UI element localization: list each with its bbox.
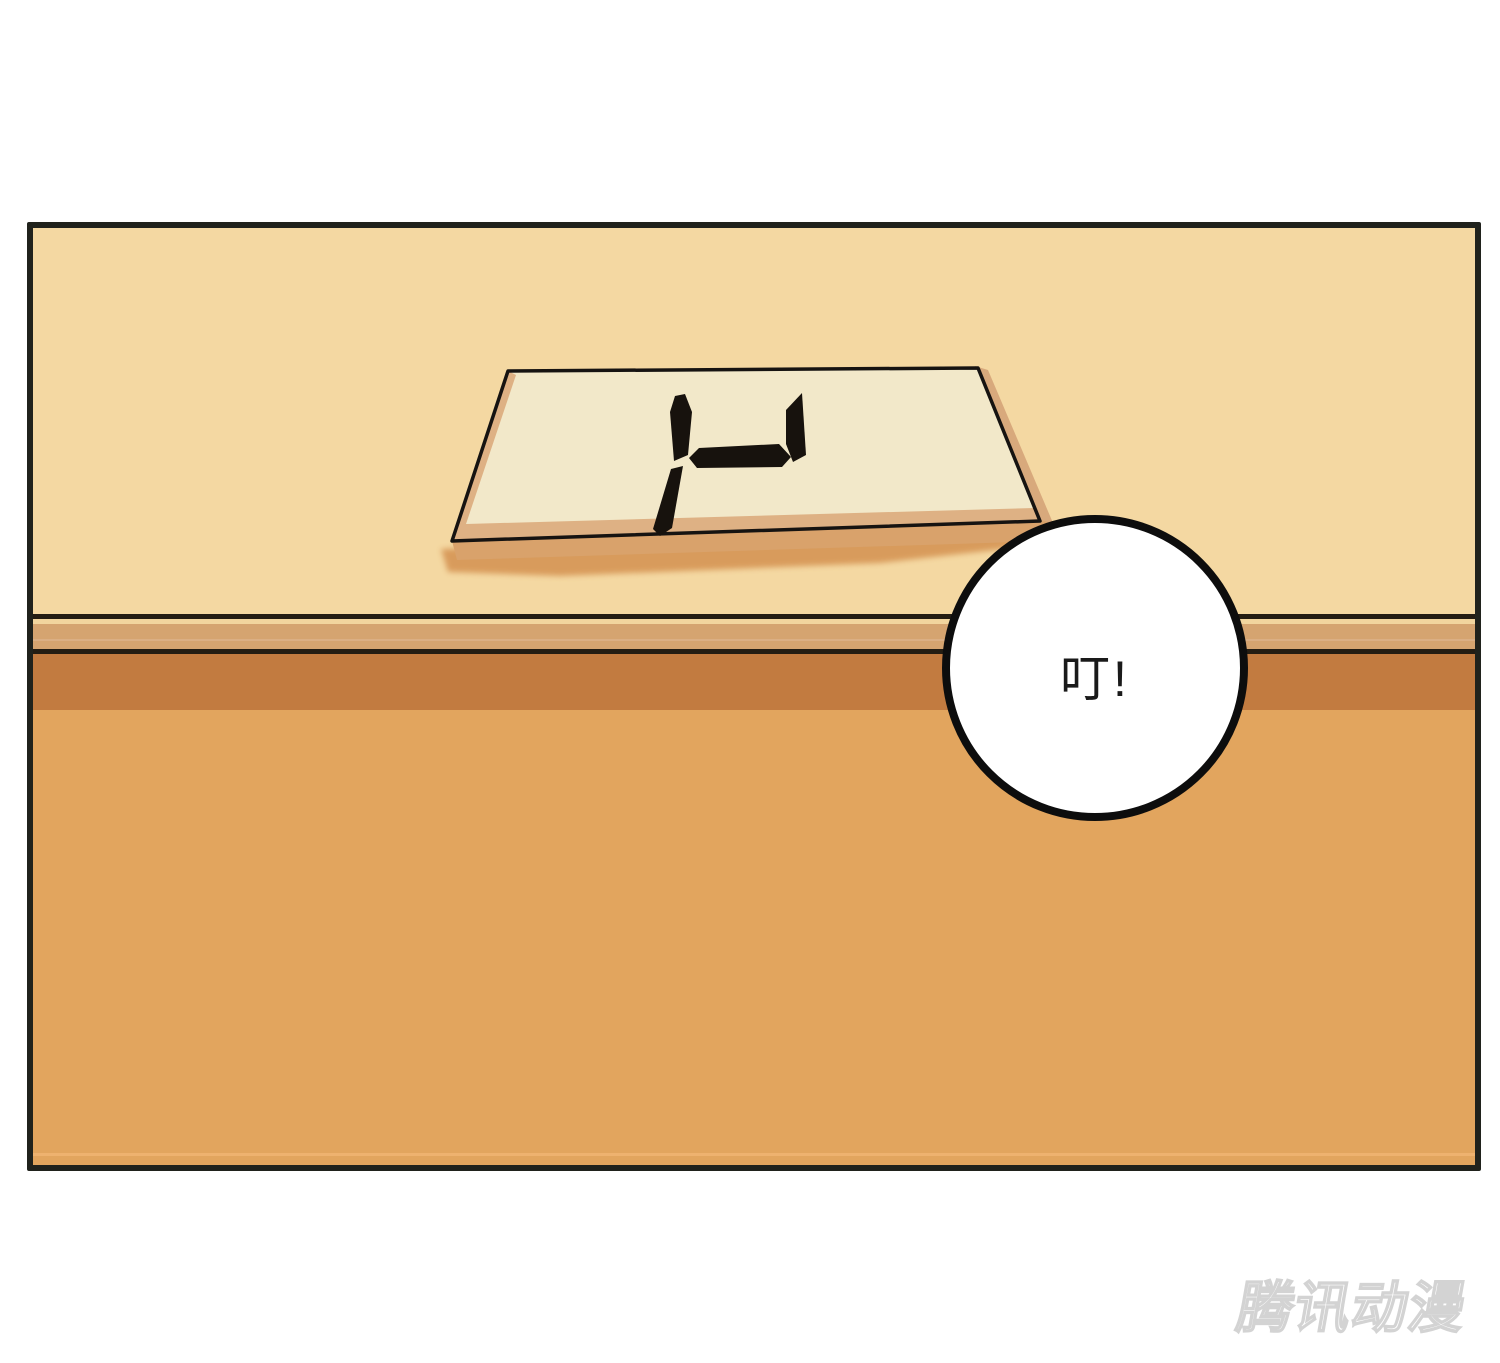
table-front-panel: [33, 710, 1475, 1165]
table-front-highlight-line: [33, 1153, 1475, 1156]
table-edge-molding-highlight: [33, 639, 1475, 641]
table-edge-molding: [33, 624, 1475, 649]
table-apron-band: [33, 654, 1475, 710]
comic-panel: [27, 222, 1481, 1171]
watermark-tencent-comics: 腾讯动漫: [1232, 1272, 1495, 1344]
page-background: 叮! 腾讯动漫: [0, 0, 1500, 1363]
wall-background: [33, 228, 1475, 614]
speech-bubble: 叮!: [942, 515, 1248, 821]
speech-bubble-text: 叮!: [1060, 654, 1130, 704]
